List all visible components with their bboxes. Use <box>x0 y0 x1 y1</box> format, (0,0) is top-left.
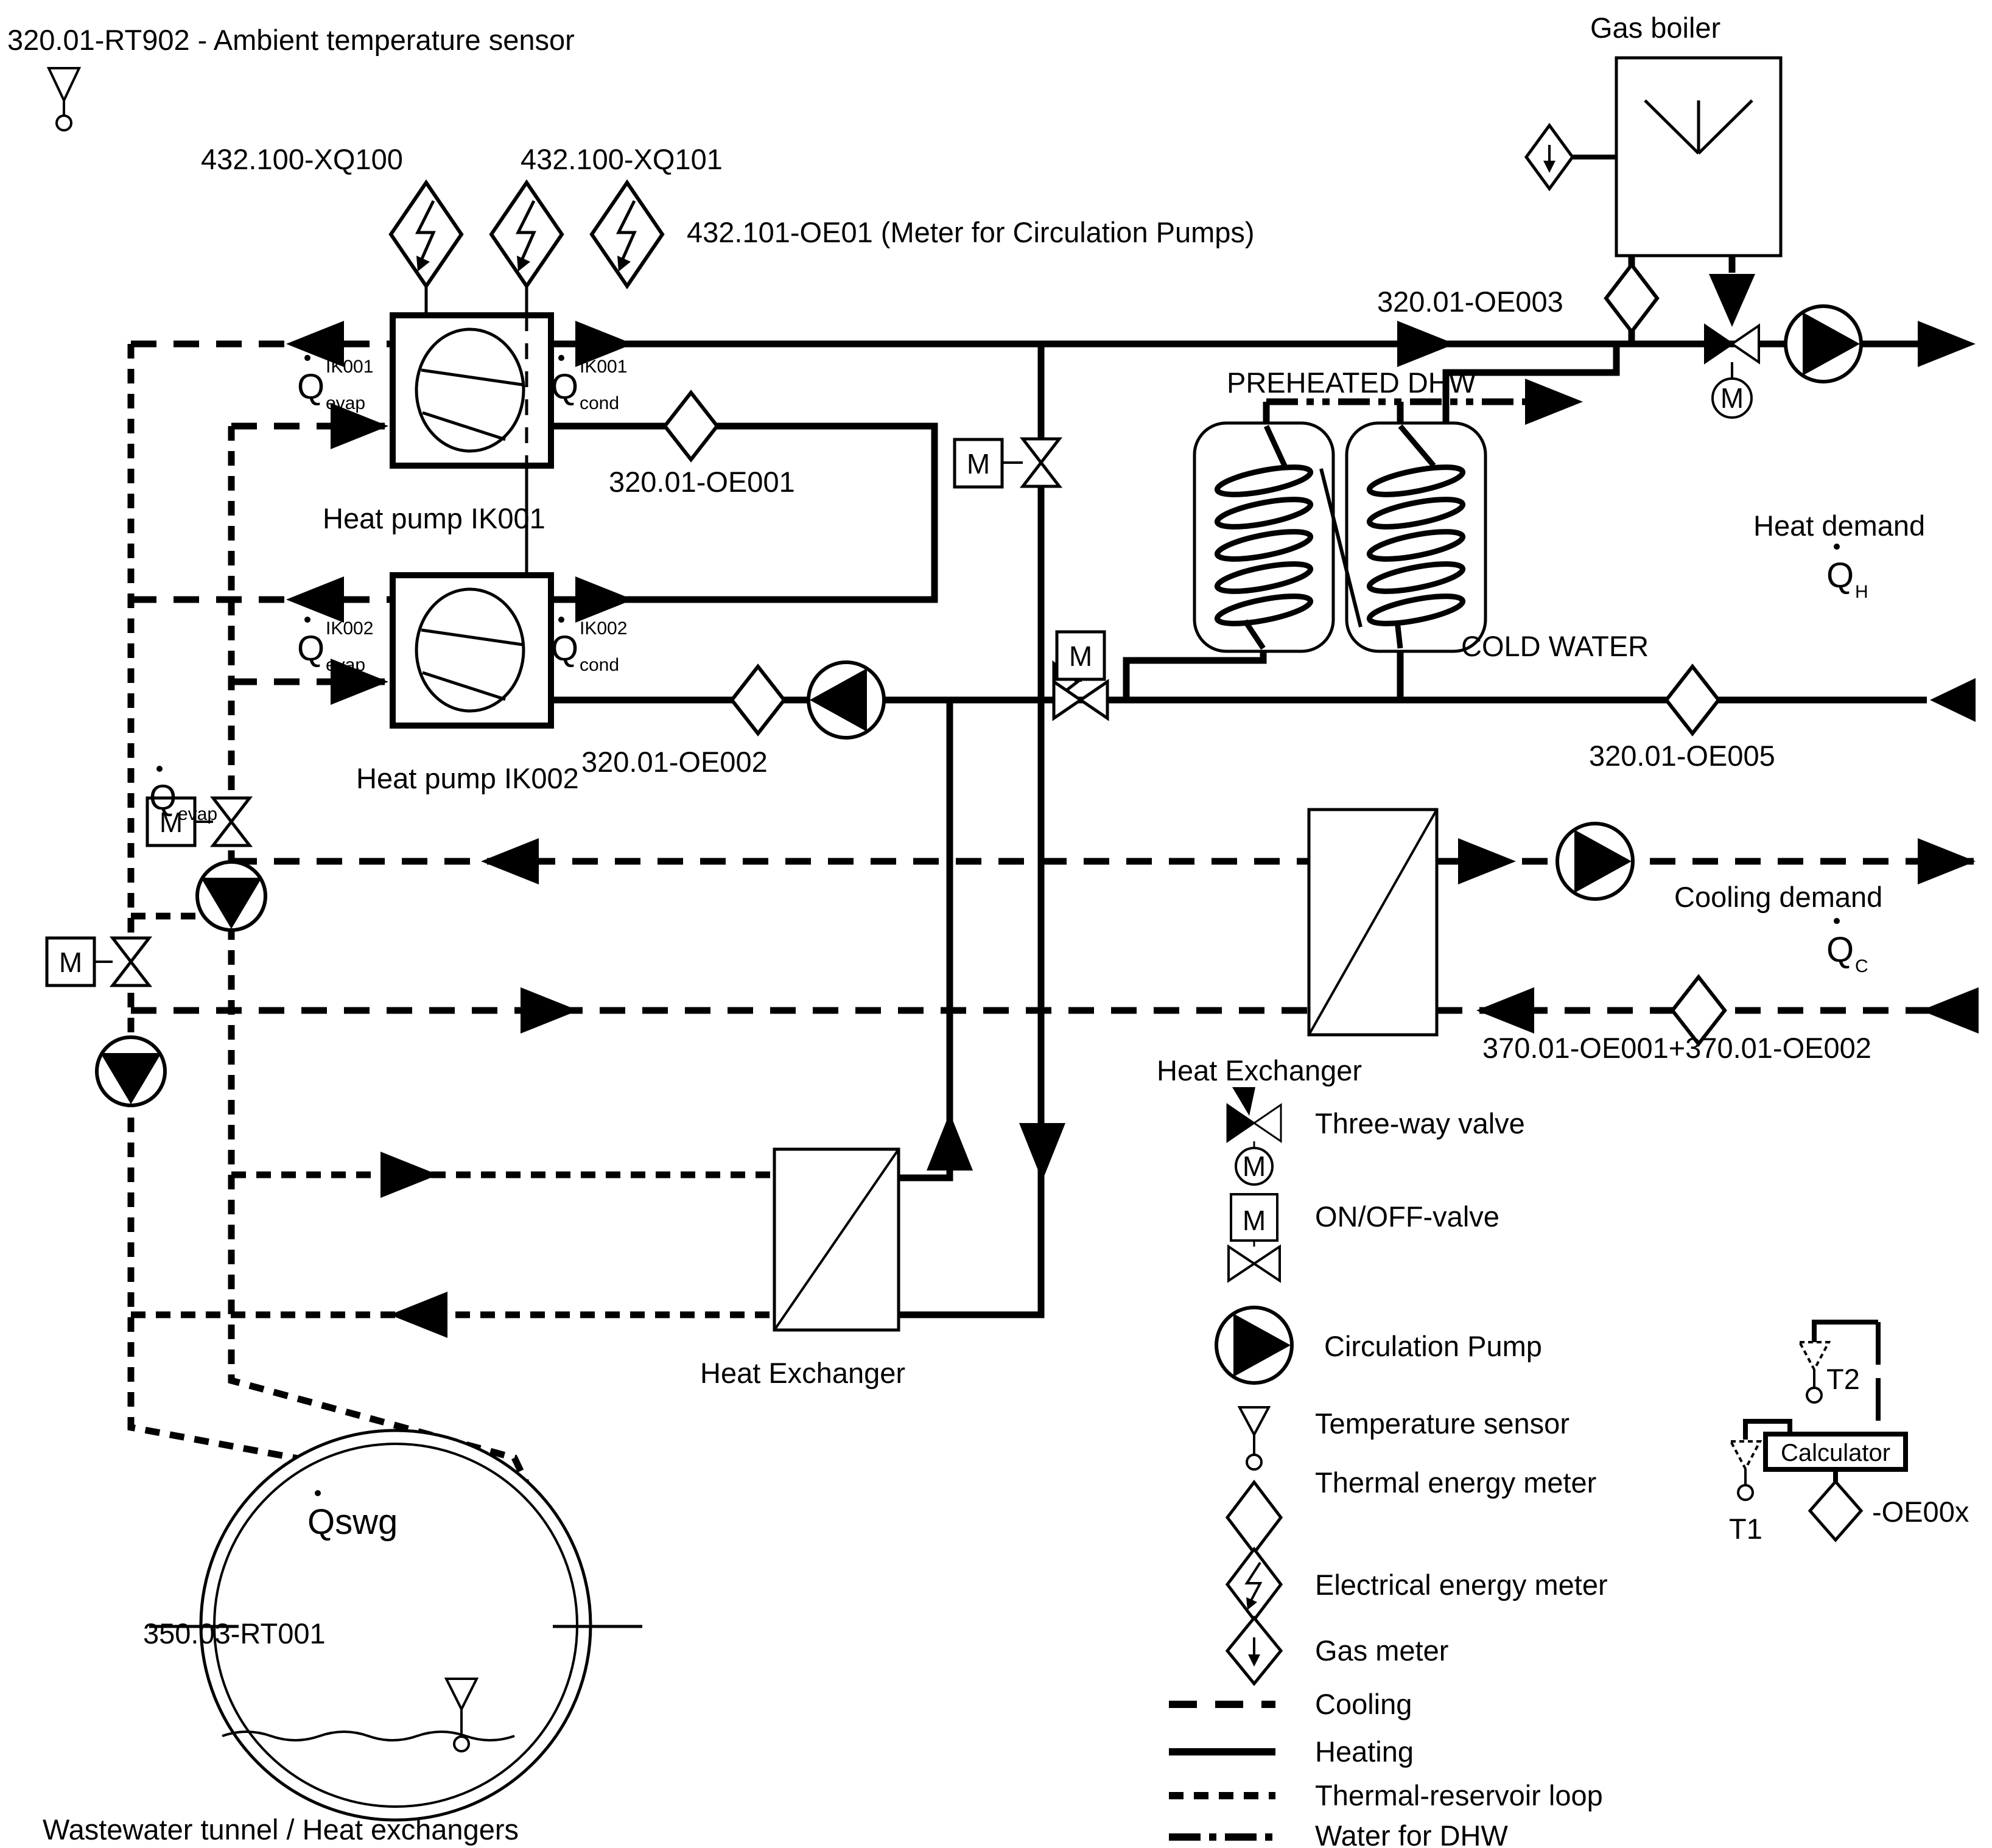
t1-sensor-icon <box>1731 1441 1760 1500</box>
flow-arrow-left <box>1930 678 1976 722</box>
pump-cooling <box>1557 824 1633 899</box>
label-calculator: Calculator <box>1781 1440 1890 1466</box>
label-oe002: 320.01-OE002 <box>581 746 768 778</box>
legend-onoff-valve-icon: M <box>1229 1194 1280 1281</box>
gas-meter-icon <box>1526 125 1616 189</box>
legend-label-onoff: ON/OFF-valve <box>1315 1200 1499 1233</box>
svg-text:cond: cond <box>580 655 619 675</box>
label-xq101: 432.100-XQ101 <box>521 143 723 175</box>
label-oe001: 320.01-OE001 <box>609 466 795 498</box>
valve-m-label: M <box>967 448 990 480</box>
label-oe003: 320.01-OE003 <box>1377 285 1563 318</box>
flow-arrow-left <box>1476 987 1534 1034</box>
flow-arrow-right <box>1918 838 1976 884</box>
legend-label-three-way: Three-way valve <box>1315 1107 1525 1139</box>
pump-reservoir-right <box>197 862 265 930</box>
schematic-canvas: M M M M M <box>0 0 1992 1848</box>
heating-drop-to-bottom-hx <box>899 486 1041 1315</box>
meter-oe001 <box>665 393 717 460</box>
flow-arrow-right <box>1397 321 1455 367</box>
reservoir-line-left <box>131 344 304 1612</box>
pump-return-line <box>808 662 884 738</box>
label-oe005: 320.01-OE005 <box>1589 740 1775 772</box>
calculator-meter-diamond <box>1810 1482 1861 1540</box>
legend-circulation-pump-icon <box>1216 1307 1292 1383</box>
flow-arrow-down <box>1709 274 1755 327</box>
flow-arrow-right <box>381 1152 438 1198</box>
hp-cascade-loop-line <box>551 426 935 600</box>
svg-text:Q: Q <box>149 778 177 817</box>
valve-m-label: M <box>59 947 82 978</box>
label-gas-boiler: Gas boiler <box>1590 12 1720 44</box>
label-t1: T1 <box>1729 1513 1762 1545</box>
ambient-temperature-sensor-icon <box>49 68 79 130</box>
legend-label-water-dhw: Water for DHW <box>1315 1819 1508 1848</box>
svg-text:Q: Q <box>1826 930 1854 970</box>
svg-text:cond: cond <box>580 393 619 413</box>
flow-arrow-right <box>575 576 633 623</box>
meter-oe002 <box>732 667 784 733</box>
flow-arrow-right <box>1525 379 1583 425</box>
t2-sensor-icon <box>1800 1342 1829 1402</box>
heat-exchanger-bottom <box>774 1149 899 1330</box>
legend-thermal-meter-icon <box>1227 1482 1281 1553</box>
three-way-valve: M <box>1705 326 1759 418</box>
svg-text:C: C <box>1855 956 1868 976</box>
valve-m-label: M <box>1243 1150 1266 1182</box>
svg-text:IK002: IK002 <box>580 618 627 639</box>
flow-arrow-right <box>521 987 578 1034</box>
legend-label-heating: Heating <box>1315 1735 1414 1768</box>
label-cold-water: COLD WATER <box>1461 630 1649 662</box>
q-evap-left: Q evap <box>149 766 217 824</box>
electrical-meters-top <box>391 183 662 315</box>
gas-boiler <box>1526 58 1781 256</box>
bottom-hx-riser <box>899 700 950 1178</box>
flow-arrow-right <box>1458 838 1516 884</box>
onoff-valve-return-line: M <box>1054 632 1107 718</box>
label-oe-sum: 370.01-OE001+370.01-OE002 <box>1482 1032 1871 1064</box>
svg-text:H: H <box>1855 582 1868 602</box>
heat-pump-ik001 <box>393 315 551 466</box>
svg-text:Q: Q <box>551 629 578 668</box>
svg-text:Qswg: Qswg <box>307 1502 398 1542</box>
onoff-valve-reservoir-left: M <box>47 938 149 985</box>
electrical-energy-meter-icon <box>391 183 461 286</box>
svg-text:Q: Q <box>551 367 578 407</box>
svg-text:IK002: IK002 <box>326 618 373 639</box>
flow-arrow-left <box>390 1292 447 1338</box>
legend: M M <box>1169 1087 1292 1837</box>
valve-m-label: M <box>1243 1205 1266 1236</box>
flow-arrow-right <box>1918 321 1976 367</box>
flow-arrow-up <box>927 1113 973 1171</box>
valve-m-label: M <box>1720 382 1744 414</box>
t2-wire <box>1814 1322 1878 1342</box>
label-hx-right: Heat Exchanger <box>1157 1054 1362 1087</box>
label-wastewater: Wastewater tunnel / Heat exchangers <box>43 1813 519 1846</box>
label-hp1: Heat pump IK001 <box>323 502 545 534</box>
flow-arrow-left <box>1921 987 1979 1034</box>
flow-arrow-left <box>286 576 344 623</box>
legend-gas-meter-icon <box>1227 1618 1281 1684</box>
heat-exchanger-cooling <box>1309 810 1437 1035</box>
meter-oe003 <box>1606 265 1657 332</box>
pump-heating-main <box>1786 306 1861 382</box>
svg-text:evap: evap <box>326 655 365 675</box>
meter-oe005 <box>1666 667 1719 733</box>
label-ambient-sensor: 320.01-RT902 - Ambient temperature senso… <box>7 24 575 56</box>
label-cooling-demand: Cooling demand <box>1674 881 1882 913</box>
legend-three-way-valve-icon: M <box>1227 1087 1281 1185</box>
q-cond-ik001: Q IK001 cond <box>551 355 627 413</box>
gas-boiler-box <box>1616 58 1781 256</box>
dhw-tanks <box>1194 423 1485 651</box>
legend-temperature-sensor-icon <box>1240 1407 1269 1469</box>
diagram-svg: M M M M M <box>0 0 1992 1848</box>
legend-label-pump: Circulation Pump <box>1324 1330 1542 1362</box>
label-hp2: Heat pump IK002 <box>356 762 579 794</box>
svg-text:IK001: IK001 <box>326 357 373 377</box>
svg-text:evap: evap <box>326 393 365 413</box>
legend-label-gas-meter: Gas meter <box>1315 1634 1448 1667</box>
electrical-energy-meter-icon <box>491 183 562 286</box>
q-evap-ik002: Q IK002 evap <box>297 617 373 675</box>
svg-text:IK001: IK001 <box>580 357 627 377</box>
label-hx-bottom: Heat Exchanger <box>700 1357 905 1389</box>
onoff-valve-heating-drop: M <box>955 439 1059 487</box>
tank1-cold-feed <box>1126 651 1263 700</box>
legend-label-temp-sensor: Temperature sensor <box>1315 1407 1569 1440</box>
legend-electrical-meter-icon <box>1227 1549 1281 1620</box>
svg-text:Q: Q <box>1826 556 1854 595</box>
legend-label-reservoir: Thermal-reservoir loop <box>1315 1779 1603 1811</box>
label-xq100: 432.100-XQ100 <box>201 143 403 175</box>
q-evap-ik001: Q IK001 evap <box>297 355 373 413</box>
legend-label-electrical-meter: Electrical energy meter <box>1315 1569 1608 1601</box>
electrical-energy-meter-icon <box>592 183 662 286</box>
label-oe00x: -OE00x <box>1872 1496 1969 1528</box>
legend-label-thermal-meter: Thermal energy meter <box>1315 1466 1596 1499</box>
q-cooling-demand: Q C <box>1826 918 1868 976</box>
q-heat-demand: Q H <box>1826 544 1868 602</box>
label-rt001: 350.03-RT001 <box>143 1617 326 1650</box>
q-cond-ik002: Q IK002 cond <box>551 617 627 675</box>
flow-arrow-down <box>1019 1123 1065 1181</box>
label-heat-demand: Heat demand <box>1753 509 1925 542</box>
flow-arrow-left <box>481 838 539 884</box>
valve-m-label: M <box>1069 640 1092 672</box>
svg-text:evap: evap <box>178 804 217 824</box>
svg-text:Q: Q <box>297 629 324 668</box>
legend-label-cooling: Cooling <box>1315 1688 1412 1720</box>
svg-text:Q: Q <box>297 367 324 407</box>
label-t2: T2 <box>1826 1363 1860 1395</box>
pump-reservoir-left <box>97 1037 165 1105</box>
label-oe01-pumps: 432.101-OE01 (Meter for Circulation Pump… <box>687 216 1255 248</box>
label-preheated-dhw: PREHEATED DHW <box>1227 366 1476 399</box>
